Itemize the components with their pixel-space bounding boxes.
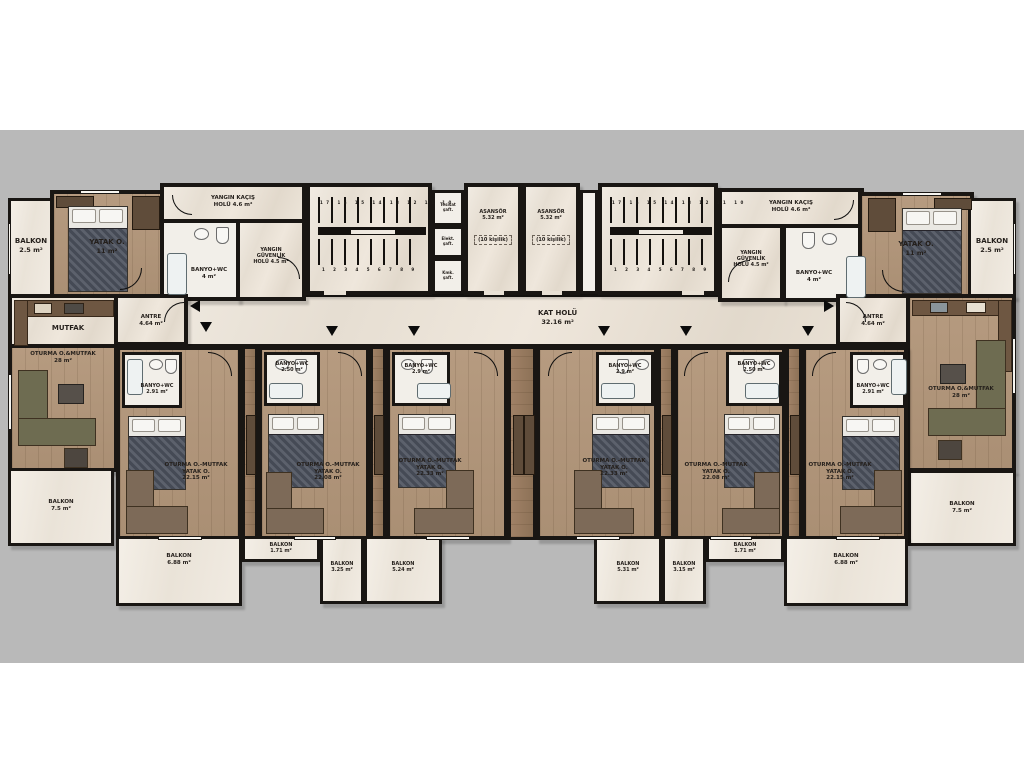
room-antre-left: ANTRE 4.64 m² (114, 294, 188, 346)
bathtub (601, 383, 635, 399)
studio-unit-6: BANYO+WC 2.91 m² OTURMA O.-MUTFAK YATAK … (802, 346, 908, 540)
balkon-area: 7.5 m² (11, 506, 111, 513)
wardrobe (662, 415, 672, 475)
yatak-name: YATAK O. (862, 240, 970, 249)
elevator-door (542, 291, 562, 295)
room-banyo-left: BANYO+WC 4 m² (160, 219, 240, 301)
room-yangin-guvenlik-right: YANGIN GÜVENLİK HOLÜ 4.5 m² (718, 224, 784, 302)
room-label: BALKON 2.5 m² (971, 237, 1013, 254)
bathtub (846, 256, 866, 298)
balkon-area: 6.88 m² (787, 560, 905, 567)
pillow (272, 417, 294, 430)
coffee-table (58, 384, 84, 404)
door-arc (812, 352, 836, 376)
mutfak-name: MUTFAK (22, 324, 114, 333)
studio-name-line1: OTURMA O.-MUTFAK (290, 462, 366, 469)
banyo-area: 2.9 m² (599, 369, 651, 375)
window (80, 190, 120, 194)
studio-banyo: BANYO+WC 2.91 m² (850, 352, 906, 408)
banyo-name: BANYO+WC (182, 267, 236, 274)
room-label: OTURMA O.-MUTFAK YATAK O. 22.33 m² (390, 458, 470, 478)
door-arc (846, 302, 866, 322)
balcony-door (576, 536, 620, 540)
wardrobe (868, 198, 896, 232)
studio-name-line1: OTURMA O.-MUTFAK (678, 462, 754, 469)
shaft-line2: şaft. (435, 208, 461, 213)
balcony-door (426, 536, 470, 540)
wardrobe (524, 415, 535, 475)
room-label: BANYO+WC 2.9 m² (395, 363, 447, 375)
room-label: OTURMA O.&MUTFAK 28 m² (12, 351, 114, 364)
balkon-area: 1.71 m² (709, 548, 781, 554)
stairs-lower-flight (610, 239, 708, 265)
room-label: ASANSÖR 5.32 m² (10 kişilik) (526, 209, 576, 245)
entry-arrow-left-wing (190, 300, 200, 312)
door-arc (172, 195, 192, 215)
banyo-area: 2.91 m² (853, 389, 893, 395)
toilet (216, 227, 229, 244)
yatak-area: 11 m² (54, 247, 160, 255)
window (8, 374, 12, 430)
studio-name-line1: OTURMA O.-MUTFAK (154, 462, 238, 469)
room-label: OTURMA O.-MUTFAK YATAK O. 22.33 m² (574, 458, 654, 478)
room-balkon-right-top: BALKON 2.5 m² (968, 198, 1016, 298)
room-yangin-guvenlik-left: YANGIN GÜVENLİK HOLÜ 4.5 m² (236, 219, 306, 301)
sofa (126, 506, 188, 534)
balkon-name: BALKON (11, 499, 111, 506)
room-antre-right: ANTRE 4.64 m² (836, 294, 910, 346)
studio-unit-3: BANYO+WC 2.9 m² OTURMA O.-MUTFAK YATAK O… (386, 346, 508, 540)
balcony-door (158, 536, 202, 540)
room-mutfak-left: MUTFAK (8, 294, 118, 348)
room-shaft-3-left: Kmk. şaft. (432, 258, 464, 294)
room-shaft-column-right (580, 190, 598, 294)
studio-name-line1: OTURMA O.-MUTFAK (574, 458, 654, 465)
pillow (99, 209, 123, 223)
studio-area: 22.15 m² (806, 475, 874, 482)
room-label: BANYO+WC 2.9 m² (599, 363, 651, 375)
entry-arrow-unit-5 (680, 326, 692, 336)
oturma-area: 28 m² (910, 393, 1012, 400)
kitchen-sink (34, 303, 52, 314)
sink (149, 359, 163, 370)
room-banyo-right: BANYO+WC 4 m² (782, 224, 864, 302)
asansor-capacity: (10 kişilik) (474, 235, 512, 245)
pillow (933, 211, 957, 225)
wardrobe (246, 415, 256, 475)
door-arc (834, 200, 854, 220)
balcony-8: BALKON 6.88 m² (784, 536, 908, 606)
room-yangin-kacis-left: YANGIN KAÇIŞ HOLÜ 4.6 m² (160, 183, 306, 223)
asansor-area: 5.32 m² (468, 215, 518, 221)
shaft-label: Kmk. şaft. (435, 271, 461, 281)
room-oturma-right: OTURMA O.&MUTFAK 28 m² (906, 294, 1016, 472)
pillow (428, 417, 451, 430)
room-label: OTURMA O.-MUTFAK YATAK O. 22.15 m² (806, 462, 874, 482)
studio-banyo: BANYO+WC 2.9 m² (596, 352, 654, 406)
room-label: BALKON 3.25 m² (323, 561, 361, 573)
door-arc (120, 268, 142, 290)
balkon-area: 3.25 m² (323, 567, 361, 573)
room-label: BALKON 7.5 m² (911, 501, 1013, 514)
sink (873, 359, 887, 370)
studio-separator-center (508, 346, 536, 540)
studio-area: 22.08 m² (290, 475, 366, 482)
studio-banyo: BANYO+WC 2.50 m² (264, 352, 320, 406)
wardrobe (132, 196, 160, 230)
balkon-name: BALKON (787, 553, 905, 560)
balkon-area: 5.31 m² (597, 567, 659, 573)
room-label: BANYO+WC 2.91 m² (135, 383, 179, 395)
banyo-area: 4 m² (182, 274, 236, 281)
room-label: MUTFAK (22, 324, 114, 333)
asansor-area: 5.32 m² (526, 215, 576, 221)
yangin-guvenlik-line3: HOLÜ 4.5 m² (722, 262, 780, 268)
room-label: BANYO+WC 2.50 m² (729, 361, 779, 373)
balkon-area: 7.5 m² (911, 508, 1013, 515)
balcony-1: BALKON 6.88 m² (116, 536, 242, 606)
studio-unit-5: BANYO+WC 2.50 m² OTURMA O.-MUTFAK YATAK … (674, 346, 786, 540)
banyo-area: 2.50 m² (267, 367, 317, 373)
room-label: BALKON 1.71 m² (709, 542, 781, 554)
studio-area: 22.08 m² (678, 475, 754, 482)
sofa (574, 508, 634, 534)
pillow (846, 419, 869, 432)
door-arc (164, 302, 184, 322)
banyo-area: 2.91 m² (135, 389, 179, 395)
studio-unit-2: BANYO+WC 2.50 m² OTURMA O.-MUTFAK YATAK … (258, 346, 370, 540)
room-label: BALKON 3.15 m² (665, 561, 703, 573)
studio-banyo: BANYO+WC 2.50 m² (726, 352, 782, 406)
floor-plan-page: KAT HOLÜ 32.16 m² BALKON 2.5 m² YATAK O.… (0, 0, 1024, 768)
balkon-name: BALKON (911, 501, 1013, 508)
balcony-door (836, 536, 880, 540)
room-label: BALKON 6.88 m² (119, 553, 239, 566)
pillow (297, 417, 319, 430)
pillow (906, 211, 930, 225)
door-arc (684, 352, 708, 376)
oturma-name: OTURMA O.&MUTFAK (12, 351, 114, 358)
room-label: BANYO+WC 4 m² (786, 270, 842, 283)
room-yatak-left: YATAK O. 11 m² (50, 190, 164, 298)
room-label: ASANSÖR 5.32 m² (10 kişilik) (468, 209, 518, 245)
wardrobe (374, 415, 384, 475)
bathtub (891, 359, 907, 395)
entry-arrow-unit-1 (200, 322, 212, 332)
stove (966, 302, 986, 313)
room-stair-left: 17 16 15 14 13 12 11 10 1 2 3 4 5 6 7 8 … (306, 183, 432, 295)
sofa (840, 506, 902, 534)
toilet (857, 359, 869, 374)
kitchen-counter (14, 300, 28, 346)
studio-area: 22.33 m² (574, 471, 654, 478)
pillow (872, 419, 895, 432)
stair-numbers-lower: 1 2 3 4 5 6 7 8 9 (614, 267, 710, 272)
balkon-name: BALKON (119, 553, 239, 560)
elevator-door (484, 291, 504, 295)
entry-arrow-right-wing (824, 300, 834, 312)
room-label: BANYO+WC 2.91 m² (853, 383, 893, 395)
balcony-6: BALKON 3.15 m² (662, 536, 706, 604)
sofa (722, 508, 780, 534)
balkon-area: 1.71 m² (245, 548, 317, 554)
balcony-5: BALKON 5.31 m² (594, 536, 662, 604)
sofa (928, 408, 1006, 436)
studio-name-line1: OTURMA O.-MUTFAK (806, 462, 874, 469)
kitchen-counter (912, 300, 1012, 316)
pillow (402, 417, 425, 430)
bathtub (269, 383, 303, 399)
studio-separator (370, 346, 386, 540)
studio-area: 22.33 m² (390, 471, 470, 478)
room-label: YATAK O. 11 m² (862, 240, 970, 257)
pillow (622, 417, 645, 430)
studio-banyo: BANYO+WC 2.91 m² (122, 352, 182, 408)
room-label: YANGIN GÜVENLİK HOLÜ 4.5 m² (722, 250, 780, 268)
door-arc (548, 352, 572, 376)
wardrobe (790, 415, 800, 475)
pillow (753, 417, 775, 430)
yatak-area: 11 m² (862, 249, 970, 257)
balcony-door (294, 536, 336, 540)
studio-banyo: BANYO+WC 2.9 m² (392, 352, 450, 406)
studio-unit-1: BANYO+WC 2.91 m² OTURMA O.-MUTFAK YATAK … (116, 346, 242, 540)
studio-separator (786, 346, 802, 540)
room-label: OTURMA O.-MUTFAK YATAK O. 22.08 m² (678, 462, 754, 482)
room-label: OTURMA O.-MUTFAK YATAK O. 22.15 m² (154, 462, 238, 482)
banyo-name: BANYO+WC (786, 270, 842, 277)
bathtub (745, 383, 779, 399)
balcony-door (710, 536, 752, 540)
oturma-area: 28 m² (12, 358, 114, 365)
balkon-area: 2.5 m² (11, 246, 51, 254)
room-label: BALKON 2.5 m² (11, 237, 51, 254)
coffee-table (940, 364, 966, 384)
pillow (72, 209, 96, 223)
toilet (165, 359, 177, 374)
room-shaft-2-left: Elekt. şaft. (432, 226, 464, 258)
balkon-area: 3.15 m² (665, 567, 703, 573)
room-label: BALKON 7.5 m² (11, 499, 111, 512)
shaft-label: Elekt. şaft. (435, 237, 461, 247)
room-label: BANYO+WC 2.50 m² (267, 361, 317, 373)
kat-holu-area: 32.16 m² (538, 318, 577, 326)
studio-unit-4: BANYO+WC 2.9 m² OTURMA O.-MUTFAK YATAK O… (536, 346, 658, 540)
stairs-lower-flight (318, 239, 420, 265)
yatak-name: YATAK O. (54, 238, 160, 247)
balcony-4: BALKON 5.24 m² (364, 536, 442, 604)
shaft-line2: şaft. (435, 276, 461, 281)
room-balkon-left-top: BALKON 2.5 m² (8, 198, 54, 298)
room-label: BALKON 6.88 m² (787, 553, 905, 566)
kat-holu-name: KAT HOLÜ (538, 309, 577, 318)
window (1013, 223, 1016, 275)
stair-rail-plate (638, 229, 684, 235)
door-opening (682, 291, 704, 295)
room-balkon-right-alt: BALKON 7.5 m² (908, 470, 1016, 546)
room-label: BANYO+WC 4 m² (182, 267, 236, 280)
balkon-name: BALKON (971, 237, 1013, 246)
sofa (18, 418, 96, 446)
armchair (64, 448, 88, 468)
entry-arrow-unit-6 (802, 326, 814, 336)
balkon-area: 5.24 m² (367, 567, 439, 573)
stove (64, 303, 84, 314)
window (1012, 338, 1016, 394)
studio-name-line1: OTURMA O.-MUTFAK (390, 458, 470, 465)
room-label-kat-holu: KAT HOLÜ 32.16 m² (538, 309, 577, 326)
room-shaft-1-left: Tesisat şaft. (432, 190, 464, 226)
room-label: OTURMA O.&MUTFAK 28 m² (910, 386, 1012, 399)
armchair (938, 440, 962, 460)
door-arc (208, 352, 232, 376)
stair-rail-plate (350, 229, 396, 235)
sink (194, 228, 209, 240)
pillow (132, 419, 155, 432)
pillow (596, 417, 619, 430)
oturma-name: OTURMA O.&MUTFAK (910, 386, 1012, 393)
balcony-3: BALKON 3.25 m² (320, 536, 364, 604)
studio-separator (242, 346, 258, 540)
banyo-area: 2.9 m² (395, 369, 447, 375)
room-label: BALKON 1.71 m² (245, 542, 317, 554)
sink (822, 233, 837, 245)
door-arc (882, 270, 904, 292)
door-opening (324, 291, 346, 295)
shaft-line2: şaft. (435, 242, 461, 247)
toilet (802, 232, 815, 249)
sofa (414, 508, 474, 534)
bathtub (417, 383, 451, 399)
shaft-label: Tesisat şaft. (435, 203, 461, 213)
studio-area: 22.15 m² (154, 475, 238, 482)
sofa (266, 508, 324, 534)
pillow (158, 419, 181, 432)
banyo-area: 4 m² (786, 277, 842, 284)
studio-separator (658, 346, 674, 540)
entry-arrow-unit-4 (598, 326, 610, 336)
room-label: YATAK O. 11 m² (54, 238, 160, 255)
asansor-capacity: (10 kişilik) (532, 235, 570, 245)
wardrobe (513, 415, 524, 475)
entry-arrow-unit-3 (408, 326, 420, 336)
room-stair-right: 17 16 15 14 13 12 11 10 1 2 3 4 5 6 7 8 … (598, 183, 718, 295)
room-yatak-right: YATAK O. 11 m² (858, 192, 974, 300)
room-label: BALKON 5.24 m² (367, 561, 439, 573)
kitchen-sink (930, 302, 948, 313)
balkon-area: 2.5 m² (971, 246, 1013, 254)
pillow (728, 417, 750, 430)
window (902, 192, 942, 196)
room-asansor-2: ASANSÖR 5.32 m² (10 kişilik) (522, 183, 580, 295)
entry-arrow-unit-2 (326, 326, 338, 336)
room-balkon-left-alt: BALKON 7.5 m² (8, 468, 114, 546)
door-arc (338, 352, 362, 376)
room-oturma-left: OTURMA O.&MUTFAK 28 m² (8, 344, 118, 472)
stair-numbers-lower: 1 2 3 4 5 6 7 8 9 (322, 267, 418, 272)
room-label: OTURMA O.-MUTFAK YATAK O. 22.08 m² (290, 462, 366, 482)
room-yangin-kacis-right: YANGIN KAÇIŞ HOLÜ 4.6 m² (718, 188, 864, 228)
door-arc (474, 352, 498, 376)
banyo-area: 2.50 m² (729, 367, 779, 373)
balkon-area: 6.88 m² (119, 560, 239, 567)
room-label: BALKON 5.31 m² (597, 561, 659, 573)
balkon-name: BALKON (11, 237, 51, 246)
room-asansor-1: ASANSÖR 5.32 m² (10 kişilik) (464, 183, 522, 295)
